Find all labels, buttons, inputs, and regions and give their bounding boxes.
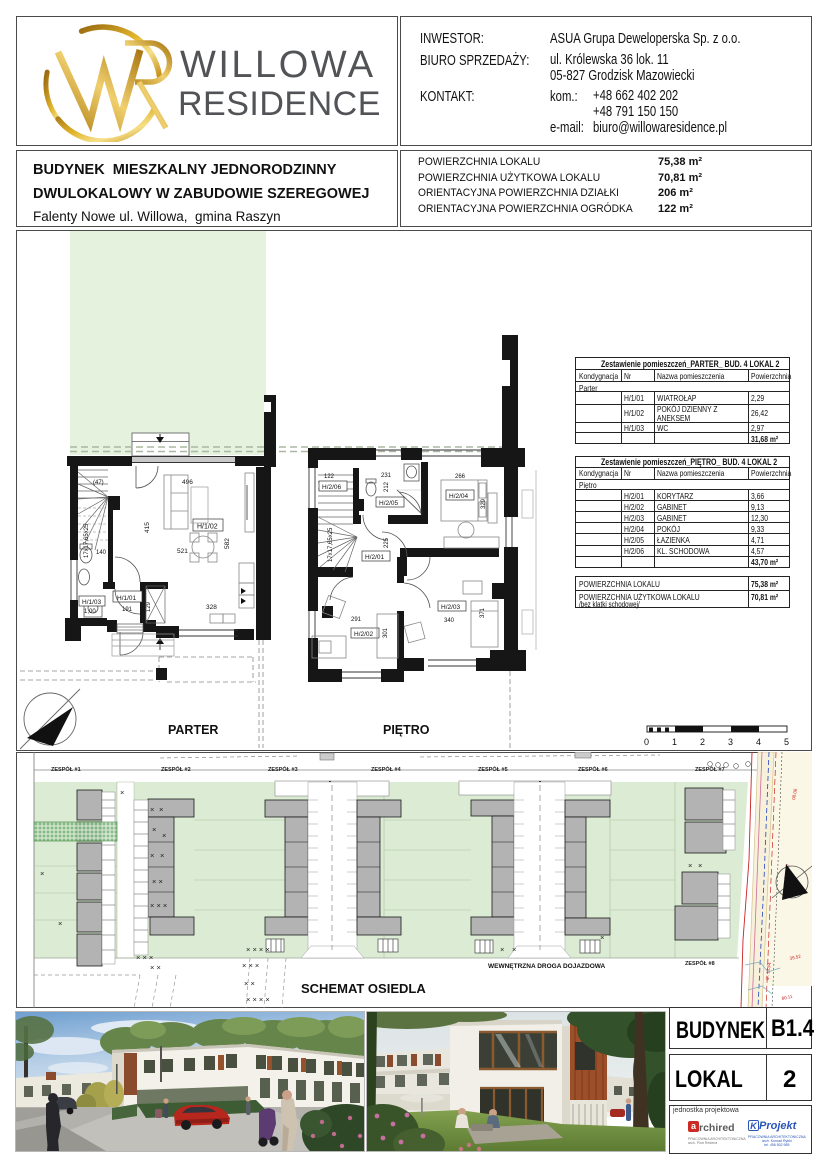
svg-text:ZESPÓŁ #2: ZESPÓŁ #2 [161,765,191,773]
svg-text:4: 4 [756,737,761,747]
svg-text:H/2/01: H/2/01 [365,554,385,561]
svg-text:H/1/01: H/1/01 [117,595,137,602]
svg-text:×: × [600,933,604,942]
svg-text:WEWNĘTRZNA DROGA DOJAZDOWA: WEWNĘTRZNA DROGA DOJAZDOWA [488,963,606,970]
svg-text:1,00: 1,00 [84,609,96,615]
svg-text:× ×: × × [150,963,161,972]
svg-text:(47): (47) [93,480,104,486]
svg-text:H/1/03: H/1/03 [82,599,102,606]
svg-text:212: 212 [384,481,390,492]
svg-text:× × × ×: × × × × [246,945,270,954]
svg-text:129: 129 [146,601,152,612]
svg-text:× ×: × × [244,979,255,988]
svg-text:582: 582 [224,538,231,549]
svg-text:H/2/05: H/2/05 [379,500,399,507]
svg-text:ZESPÓŁ #8: ZESPÓŁ #8 [685,959,715,967]
svg-text:291: 291 [351,617,362,623]
svg-text:H/2/03: H/2/03 [441,604,461,611]
svg-text:H/2/02: H/2/02 [354,631,374,638]
svg-text:231: 231 [381,473,392,479]
svg-text:340: 340 [444,618,455,624]
svg-text:× × ×: × × × [136,953,153,962]
svg-text:225: 225 [384,537,390,548]
svg-text:ZESPÓŁ #4: ZESPÓŁ #4 [371,765,402,773]
svg-text:329: 329 [481,498,487,509]
svg-text:1: 1 [672,737,677,747]
svg-text:371: 371 [480,607,486,618]
svg-text:ZESPÓŁ #3: ZESPÓŁ #3 [268,765,298,773]
svg-text:ZESPÓŁ #5: ZESPÓŁ #5 [478,765,508,773]
svg-text:×: × [500,945,504,954]
svg-text:415: 415 [144,522,151,533]
svg-text:3: 3 [728,737,733,747]
svg-text:×: × [40,869,44,878]
svg-text:× ×: × × [152,877,163,886]
svg-text:×: × [159,805,163,814]
svg-text:2: 2 [700,737,705,747]
svg-text:× × ×: × × × [242,961,259,970]
svg-text:×: × [698,861,702,870]
svg-text:ZESPÓŁ #6: ZESPÓŁ #6 [578,765,608,773]
svg-text:×: × [162,831,166,840]
svg-text:×: × [150,805,154,814]
svg-text:×: × [120,788,124,797]
svg-text:× × ×: × × × [150,901,167,910]
svg-text:×: × [160,851,164,860]
svg-text:521: 521 [177,548,188,555]
svg-text:122: 122 [324,474,335,480]
svg-text:ZESPÓŁ #1: ZESPÓŁ #1 [51,765,81,773]
svg-text:×: × [512,945,516,954]
svg-text:×: × [58,919,62,928]
svg-text:× × × ×: × × × × [246,995,270,1004]
svg-text:140: 140 [96,550,107,556]
svg-text:×: × [150,851,154,860]
svg-text:×: × [152,825,156,834]
svg-text:80.11: 80.11 [781,994,793,1001]
svg-text:H/2/04: H/2/04 [449,493,469,500]
svg-text:0: 0 [644,737,649,747]
svg-text:266: 266 [455,474,466,480]
svg-text:328: 328 [206,604,217,611]
svg-text:17x17,65x25: 17x17,65x25 [84,523,90,558]
svg-text:301: 301 [383,627,389,638]
svg-text:H/2/06: H/2/06 [322,484,342,491]
svg-text:17x17,65x25: 17x17,65x25 [328,527,334,562]
svg-text:5: 5 [784,737,789,747]
svg-text:×: × [688,861,692,870]
svg-text:H/1/02: H/1/02 [197,524,218,531]
